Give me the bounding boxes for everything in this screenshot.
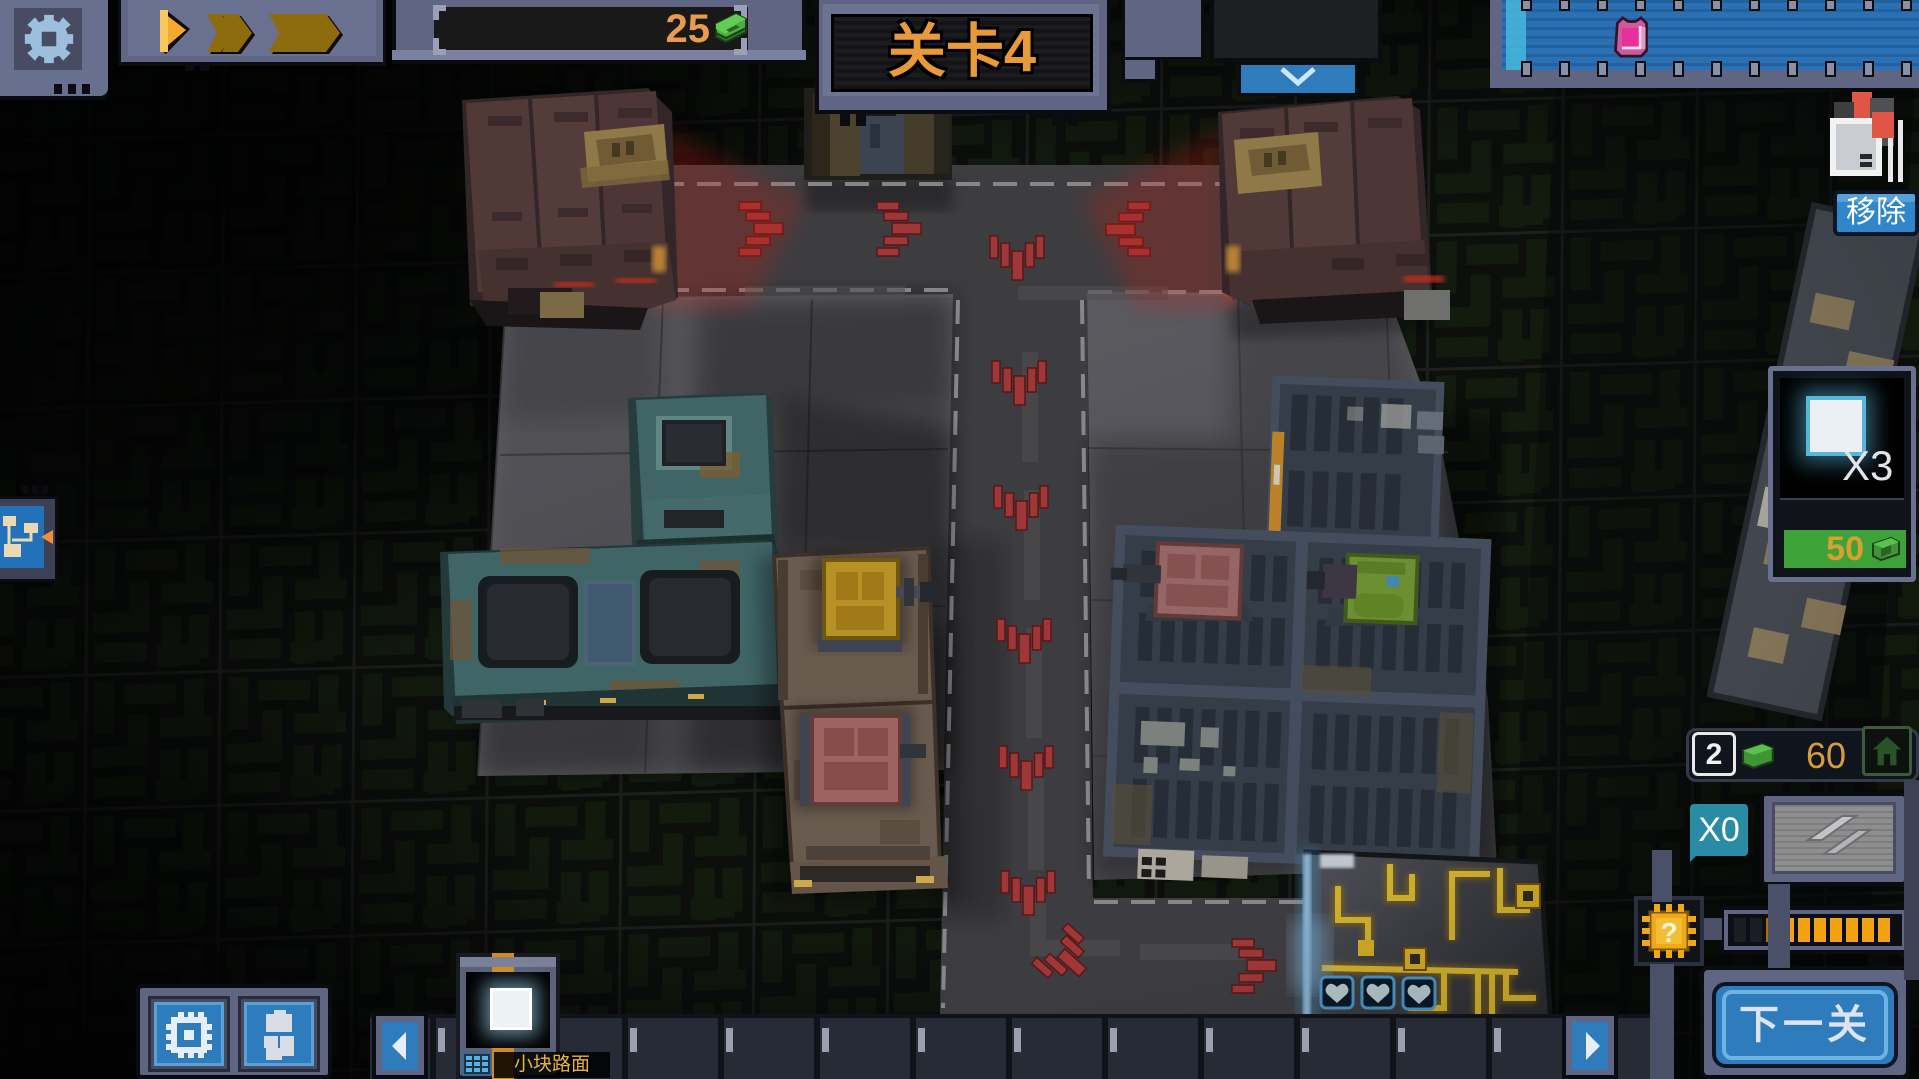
svg-text:?: ?: [1660, 917, 1677, 948]
